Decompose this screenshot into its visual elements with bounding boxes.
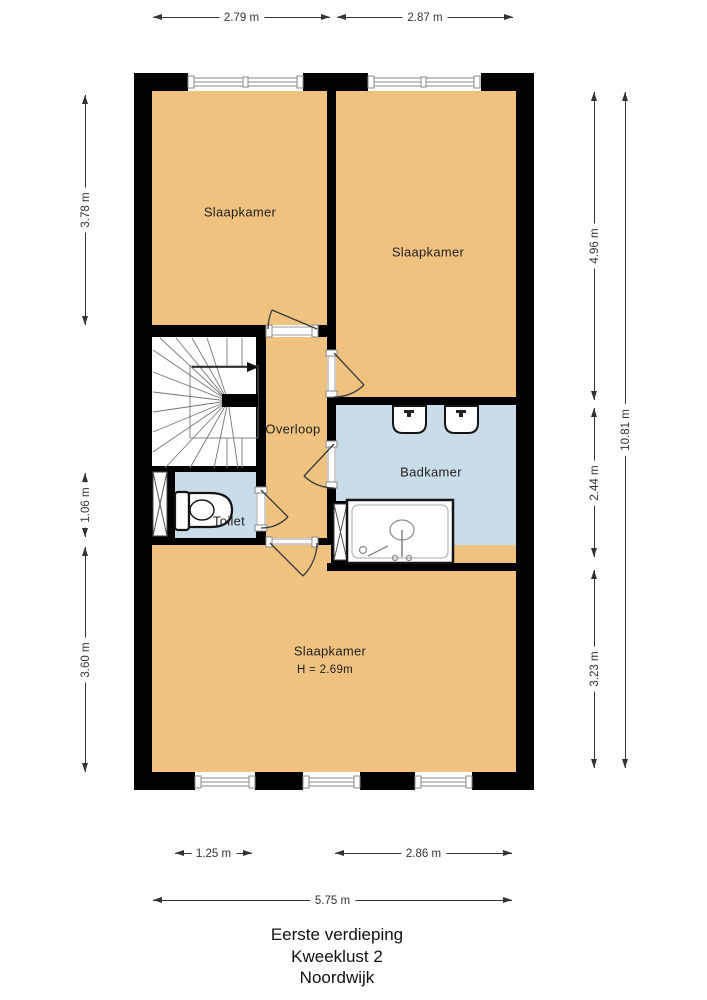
bedroom-top-left-label: Slaapkamer [204, 205, 276, 220]
dimension-bottom-2: 2.86 m [335, 853, 512, 854]
opening-bathroom [326, 441, 337, 488]
dim-arrow [153, 897, 162, 903]
window-bottom-3 [415, 772, 472, 790]
dimension-bottom-total-value: 5.75 m [310, 894, 355, 908]
dim-arrow [335, 850, 344, 856]
dimension-right-1: 4.96 m [594, 92, 595, 400]
dim-arrow [591, 759, 597, 768]
shower [347, 500, 453, 563]
dimension-bottom-1: 1.25 m [175, 853, 252, 854]
dim-arrow [591, 408, 597, 417]
exterior-wall-right [516, 73, 534, 790]
opening-bedroom-tr [326, 350, 337, 397]
dim-arrow [82, 95, 88, 104]
wall-bathroom-top [327, 397, 516, 405]
dim-arrow [82, 316, 88, 325]
dimension-left-3: 3.60 m [85, 547, 86, 772]
dim-arrow [504, 14, 513, 20]
dimension-right-3: 3.23 m [594, 570, 595, 768]
exterior-wall-left [134, 73, 152, 790]
dim-arrow [82, 763, 88, 772]
dimension-right-3-value: 3.23 m [588, 646, 602, 691]
dimension-left-1: 3.78 m [85, 95, 86, 325]
dim-arrow [591, 548, 597, 557]
dimension-top-right: 2.87 m [337, 17, 513, 18]
dim-arrow [622, 92, 628, 101]
plan-title-floor: Eerste verdieping [167, 924, 507, 946]
dimension-bottom-2-value: 2.86 m [401, 847, 446, 861]
floor-plan-page: Slaapkamer Slaapkamer Overloop Badkamer … [0, 0, 707, 1000]
dim-arrow [622, 759, 628, 768]
dimension-right-2: 2.44 m [594, 408, 595, 557]
dim-arrow [243, 850, 252, 856]
bedroom-bottom-floor [152, 545, 517, 773]
toilet-label: Toilet [213, 514, 245, 529]
stair-newel-wall [222, 394, 258, 407]
dim-arrow [321, 14, 330, 20]
bathroom-label: Badkamer [400, 465, 462, 480]
dimension-right-2-value: 2.44 m [588, 460, 602, 505]
dimension-right-total: 10.81 m [625, 92, 626, 768]
dimension-right-1-value: 4.96 m [588, 223, 602, 268]
duct-left [150, 468, 175, 542]
dimension-left-1-value: 3.78 m [79, 187, 93, 232]
dimension-bottom-total: 5.75 m [153, 900, 512, 901]
window-top-1 [188, 73, 303, 91]
plan-title-street: Kweeklust 2 [167, 946, 507, 968]
dim-arrow [153, 14, 162, 20]
dimension-top-left-value: 2.79 m [219, 11, 264, 25]
dim-arrow [591, 391, 597, 400]
dim-arrow [82, 528, 88, 537]
dimension-right-total-value: 10.81 m [619, 404, 633, 456]
dim-arrow [82, 473, 88, 482]
plan-title-city: Noordwijk [167, 967, 507, 989]
dim-arrow [591, 92, 597, 101]
dim-arrow [175, 850, 184, 856]
plan-title: Eerste verdieping Kweeklust 2 Noordwijk [167, 924, 507, 989]
washbasin-1 [393, 406, 426, 433]
dim-arrow [591, 570, 597, 579]
dim-arrow [337, 14, 346, 20]
dimension-top-left: 2.79 m [153, 17, 330, 18]
dimension-bottom-1-value: 1.25 m [191, 847, 236, 861]
dimension-left-2: 1.06 m [85, 473, 86, 537]
dim-arrow [503, 850, 512, 856]
dimension-left-3-value: 3.60 m [79, 637, 93, 682]
bedroom-bottom-height-label: H = 2.69m [297, 664, 353, 676]
dim-arrow [503, 897, 512, 903]
bedroom-bottom-label: Slaapkamer [294, 644, 366, 659]
window-bottom-2 [303, 772, 360, 790]
bedroom-top-right-label: Slaapkamer [392, 245, 464, 260]
window-bottom-1 [195, 772, 255, 790]
landing-label: Overloop [265, 422, 320, 437]
window-top-2 [368, 73, 481, 91]
dimension-top-right-value: 2.87 m [402, 11, 447, 25]
dimension-left-2-value: 1.06 m [79, 482, 93, 527]
dim-arrow [82, 547, 88, 556]
washbasin-2 [445, 406, 478, 433]
